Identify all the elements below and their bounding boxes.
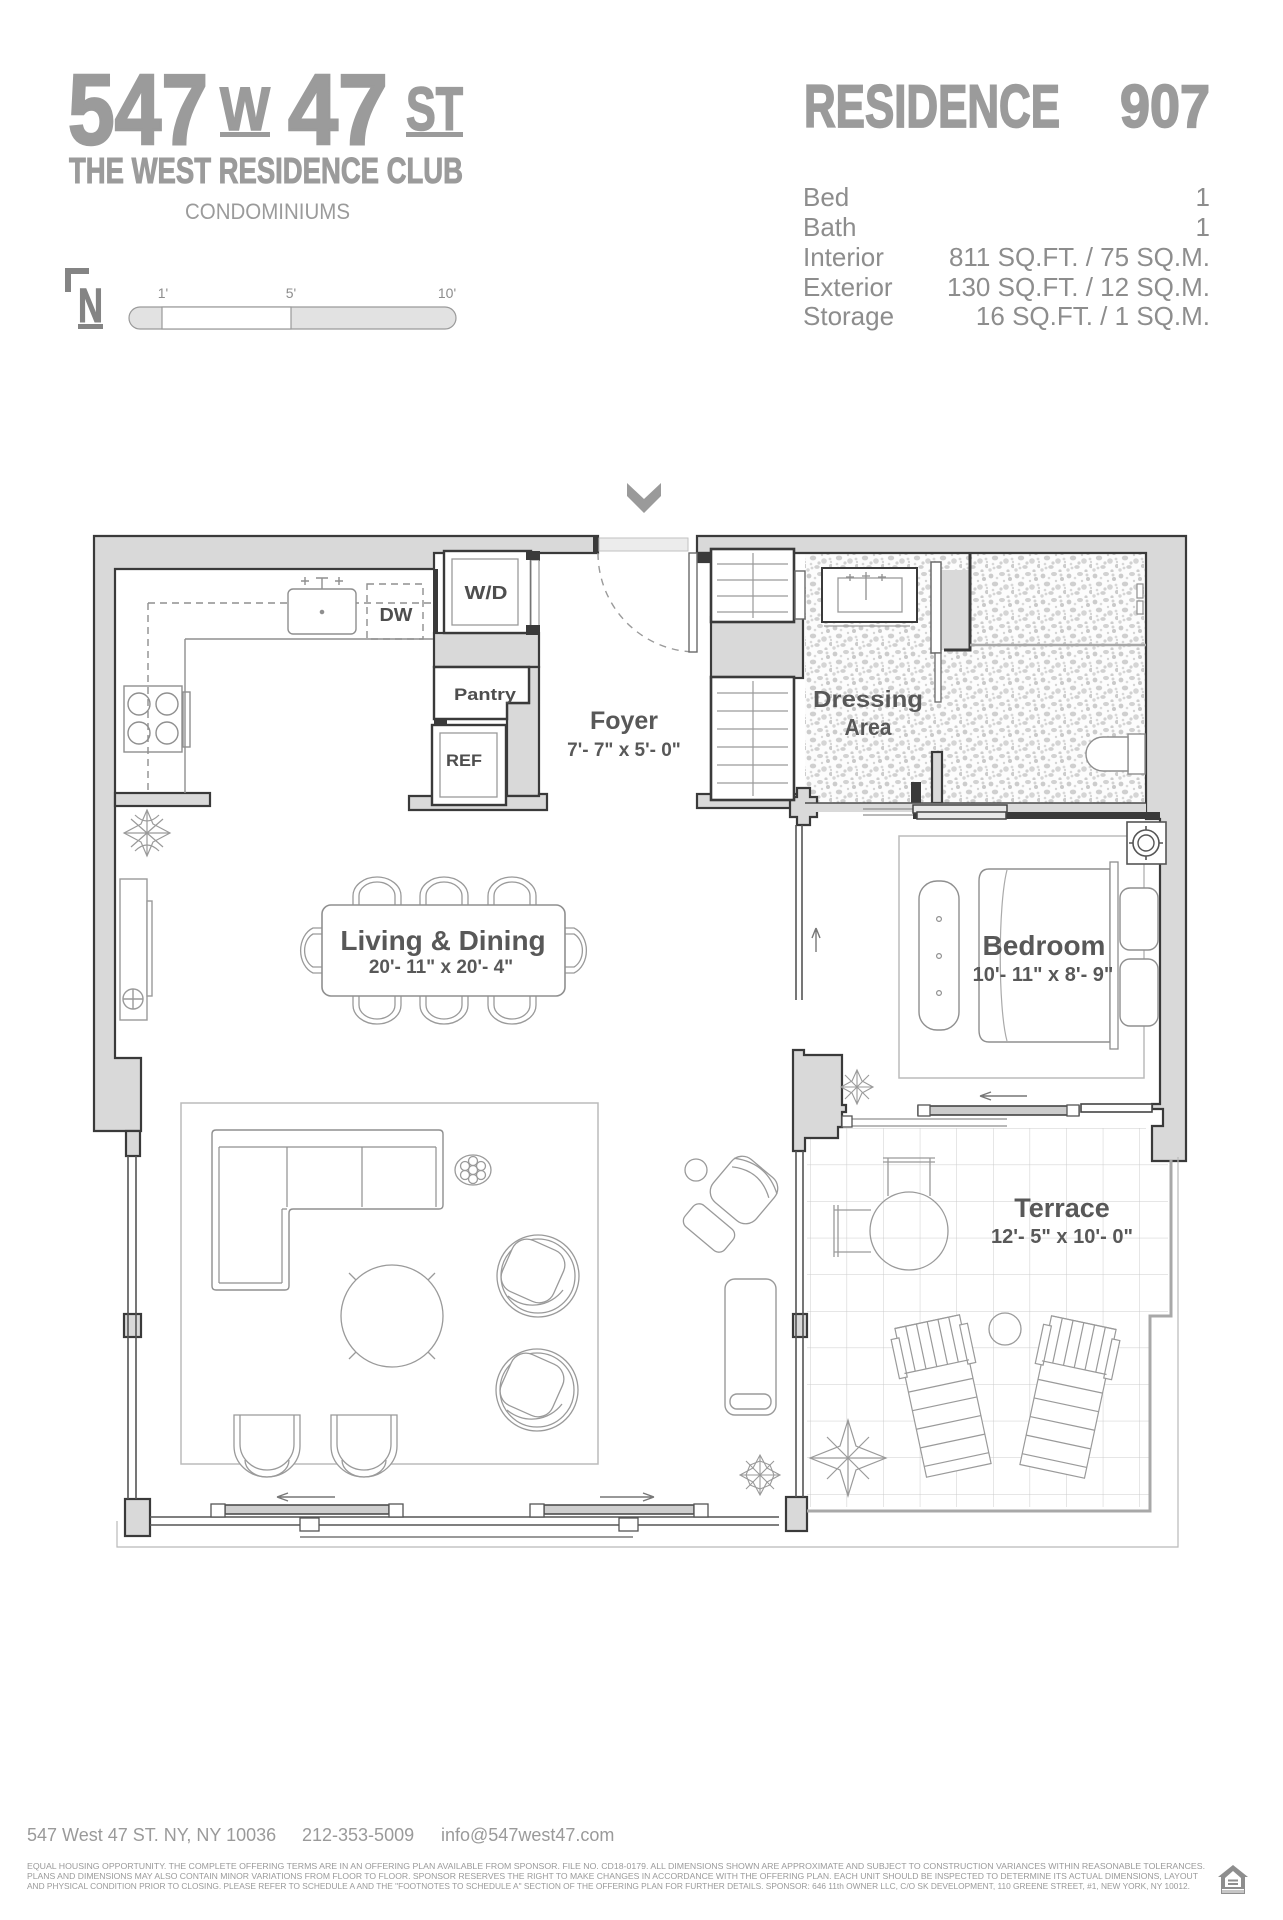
svg-text:Area: Area [845, 714, 892, 740]
svg-text:1: 1 [1196, 212, 1210, 242]
svg-text:Interior: Interior [803, 242, 884, 272]
svg-text:10'- 11" x 8'- 9": 10'- 11" x 8'- 9" [973, 964, 1114, 986]
svg-text:10': 10' [438, 285, 456, 301]
svg-text:CONDOMINIUMS: CONDOMINIUMS [185, 199, 350, 224]
svg-text:1: 1 [1196, 182, 1210, 212]
svg-text:Dressing: Dressing [813, 686, 923, 712]
svg-text:Bedroom: Bedroom [983, 930, 1106, 961]
svg-text:Exterior: Exterior [803, 272, 893, 302]
svg-text:DW: DW [380, 605, 413, 625]
svg-text:Storage: Storage [803, 301, 894, 331]
svg-text:AND PHYSICAL CONDITION PRIOR T: AND PHYSICAL CONDITION PRIOR TO CLOSING.… [27, 1881, 1190, 1891]
svg-text:130 SQ.FT. / 12 SQ.M.: 130 SQ.FT. / 12 SQ.M. [947, 272, 1210, 302]
svg-text:907: 907 [1120, 73, 1210, 140]
svg-text:REF: REF [446, 751, 482, 770]
svg-text:16 SQ.FT. / 1 SQ.M.: 16 SQ.FT. / 1 SQ.M. [976, 301, 1210, 331]
svg-text:212-353-5009: 212-353-5009 [302, 1825, 414, 1845]
svg-text:7'- 7" x 5'- 0": 7'- 7" x 5'- 0" [567, 740, 681, 761]
svg-text:Foyer: Foyer [590, 707, 658, 735]
svg-text:5': 5' [286, 285, 296, 301]
svg-text:1': 1' [158, 285, 168, 301]
svg-text:811 SQ.FT. / 75 SQ.M.: 811 SQ.FT. / 75 SQ.M. [949, 242, 1210, 272]
svg-text:THE WEST RESIDENCE CLUB: THE WEST RESIDENCE CLUB [69, 150, 463, 191]
svg-text:RESIDENCE: RESIDENCE [804, 73, 1060, 140]
svg-text:20'- 11" x 20'- 4": 20'- 11" x 20'- 4" [369, 957, 513, 978]
svg-text:Living & Dining: Living & Dining [340, 925, 545, 956]
svg-text:Bed: Bed [803, 182, 849, 212]
svg-text:Bath: Bath [803, 212, 857, 242]
svg-text:W/D: W/D [465, 583, 508, 603]
svg-text:info@547west47.com: info@547west47.com [441, 1825, 614, 1845]
svg-text:Terrace: Terrace [1014, 1193, 1110, 1223]
svg-text:EQUAL HOUSING OPPORTUNITY. THE: EQUAL HOUSING OPPORTUNITY. THE COMPLETE … [27, 1861, 1205, 1871]
svg-text:PLANS AND DIMENSIONS MAY ALSO: PLANS AND DIMENSIONS MAY ALSO CONTAIN MI… [27, 1871, 1198, 1881]
svg-text:Pantry: Pantry [454, 685, 517, 704]
svg-text:12'- 5" x 10'- 0": 12'- 5" x 10'- 0" [991, 1226, 1133, 1248]
svg-text:547 West 47 ST. NY, NY 10036: 547 West 47 ST. NY, NY 10036 [27, 1825, 276, 1845]
